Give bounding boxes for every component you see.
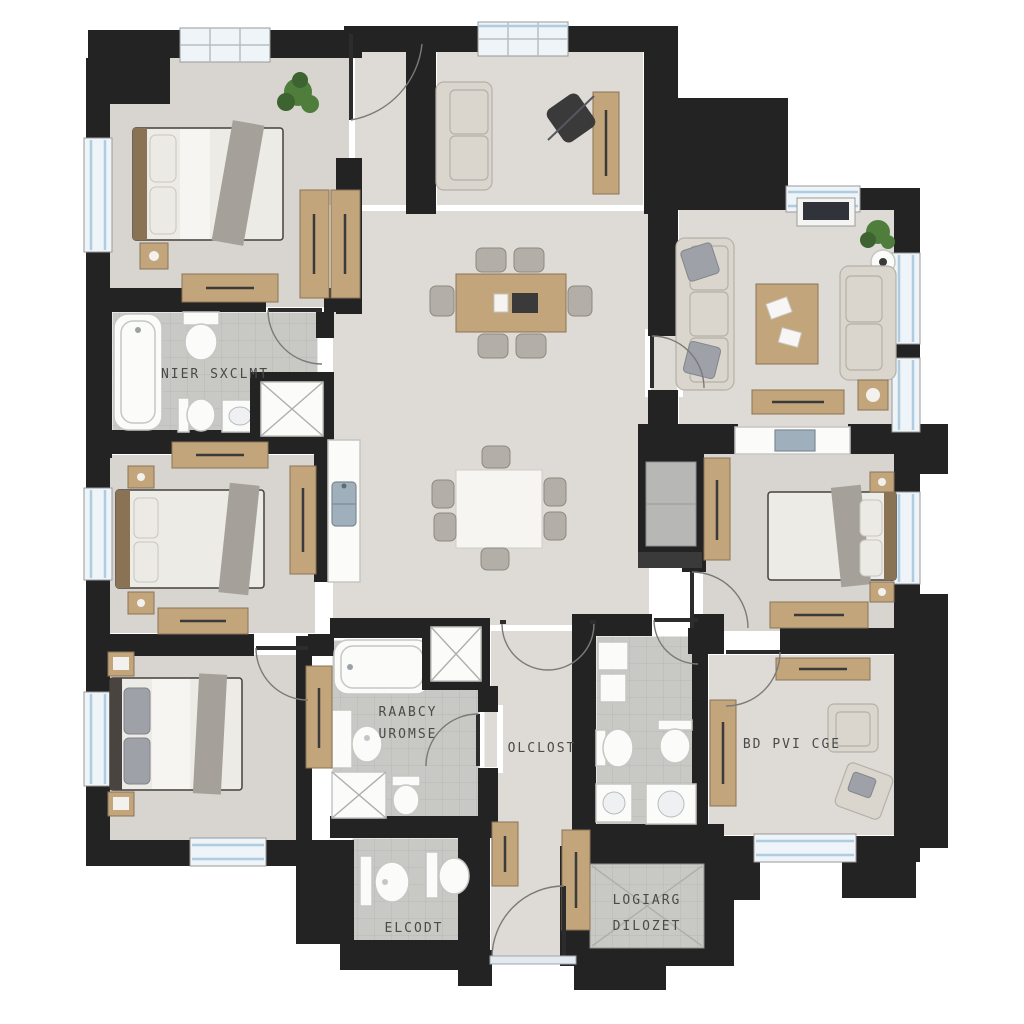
tall-dresser bbox=[306, 666, 332, 768]
toilet bbox=[352, 726, 382, 762]
closet: LOGIARG DILOZET bbox=[590, 864, 704, 948]
nightstand bbox=[108, 652, 134, 676]
nightstand bbox=[108, 792, 134, 816]
left-window-2 bbox=[84, 488, 112, 580]
loveseat-sofa bbox=[436, 82, 492, 190]
bathroom-mid-label-2: UROMSE bbox=[379, 727, 438, 742]
bed bbox=[116, 483, 264, 596]
dresser bbox=[776, 658, 870, 680]
tv bbox=[797, 198, 855, 226]
shelf bbox=[638, 552, 702, 568]
chair bbox=[514, 248, 544, 272]
entry-threshold bbox=[490, 956, 576, 964]
dresser-right-2 bbox=[331, 190, 360, 298]
hall-cabinet-left bbox=[492, 822, 518, 886]
bed bbox=[768, 485, 896, 588]
chair bbox=[482, 446, 510, 468]
coffee-table bbox=[756, 284, 818, 364]
kitchen bbox=[328, 440, 360, 582]
dresser-right-1 bbox=[300, 190, 329, 298]
bathroom-top-label: NIER SXCLMT bbox=[161, 367, 269, 382]
stool bbox=[858, 380, 888, 410]
toilet bbox=[183, 312, 219, 360]
chair bbox=[432, 480, 454, 508]
chair bbox=[544, 478, 566, 506]
bathtub bbox=[334, 640, 430, 694]
toilet bbox=[658, 720, 692, 763]
chair bbox=[476, 248, 506, 272]
bathroom-mid-label-1: RAABCY bbox=[379, 705, 438, 720]
chair bbox=[434, 513, 456, 541]
sofa-right bbox=[840, 266, 896, 380]
nightstand bbox=[870, 472, 894, 492]
wardrobe bbox=[290, 466, 316, 574]
wc-cabinet bbox=[600, 674, 626, 702]
vanity bbox=[332, 710, 352, 768]
bottom-left-window bbox=[190, 838, 266, 866]
desk bbox=[593, 92, 619, 194]
chair bbox=[430, 286, 454, 316]
sink bbox=[596, 784, 632, 822]
sofa-left bbox=[676, 238, 734, 390]
wc-sink bbox=[598, 642, 628, 670]
hall-cabinet-right bbox=[562, 830, 590, 930]
dresser-bottom bbox=[770, 602, 868, 628]
chair bbox=[568, 286, 592, 316]
office-label: BD PVI CGE bbox=[743, 737, 841, 752]
study-window bbox=[478, 22, 568, 56]
shower bbox=[250, 372, 334, 446]
kitchen-sink bbox=[332, 482, 356, 526]
nightstand bbox=[140, 243, 168, 269]
sink bbox=[646, 784, 696, 824]
nightstand bbox=[870, 582, 894, 602]
nightstand bbox=[128, 466, 154, 488]
chair bbox=[544, 512, 566, 540]
chair bbox=[516, 334, 546, 358]
vanity-counter bbox=[735, 427, 850, 454]
bed bbox=[110, 673, 242, 794]
chair bbox=[478, 334, 508, 358]
shower bbox=[422, 618, 490, 690]
shower-2 bbox=[332, 772, 386, 818]
toilet bbox=[596, 729, 633, 767]
chair bbox=[481, 548, 509, 570]
nightstand bbox=[128, 592, 154, 614]
media-console bbox=[752, 390, 844, 414]
elevator-shaft bbox=[638, 454, 704, 568]
dresser-left bbox=[704, 458, 730, 560]
toilet bbox=[392, 776, 420, 815]
dresser-bottom bbox=[158, 608, 248, 634]
office-bottom-window bbox=[754, 834, 856, 862]
central-hall-floor bbox=[330, 208, 652, 642]
tall-cabinet bbox=[710, 700, 736, 806]
closet-label-2: DILOZET bbox=[613, 919, 682, 934]
dresser-bottom bbox=[182, 274, 278, 302]
hall-label: OLCLOST bbox=[508, 741, 577, 756]
left-window-1 bbox=[84, 138, 112, 252]
floor-plan: OLCLOST NIER SXCLMT bbox=[0, 0, 1024, 1024]
toilet bbox=[178, 398, 215, 432]
skylight-window bbox=[180, 28, 270, 62]
left-window-3 bbox=[84, 692, 112, 786]
bed bbox=[133, 120, 283, 246]
closet-label-1: LOGIARG bbox=[613, 893, 682, 908]
dresser-top bbox=[172, 442, 268, 468]
bathtub bbox=[114, 314, 162, 430]
bathroom-bottom-label: ELCODT bbox=[385, 921, 444, 936]
